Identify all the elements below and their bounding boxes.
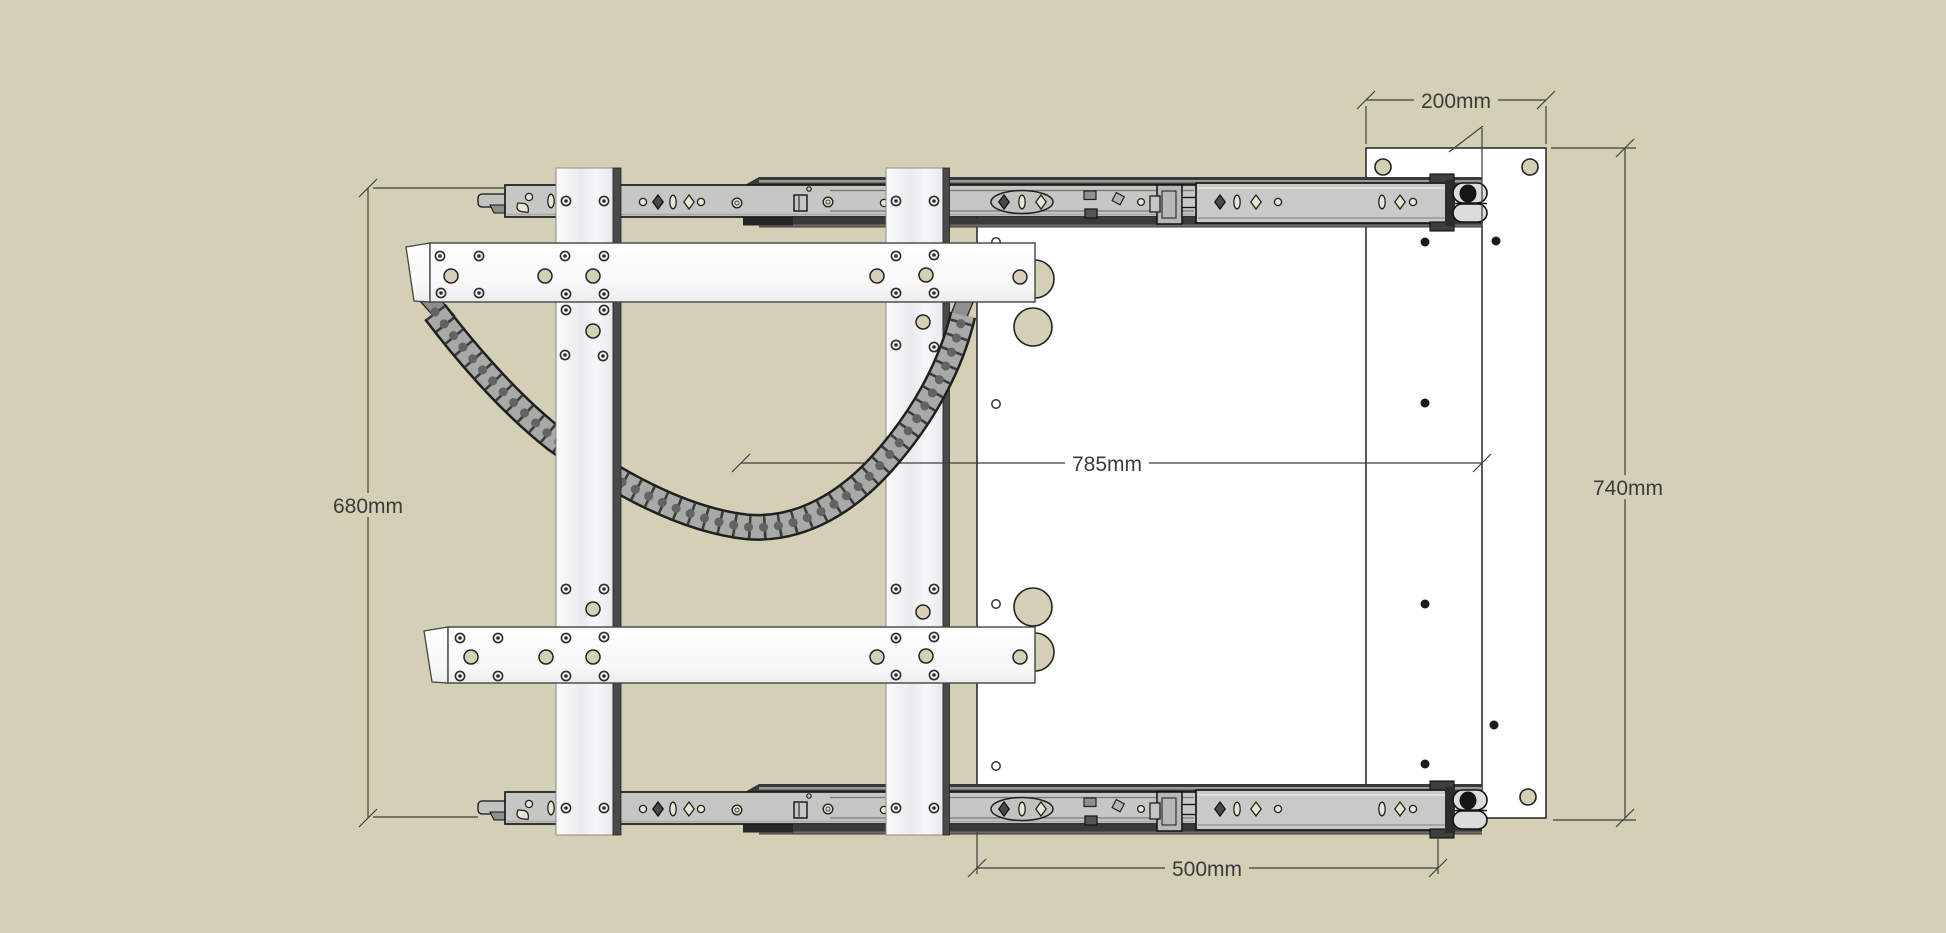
dim-label-785mm: 785mm (1072, 453, 1142, 476)
horizontal-bracket-top (406, 243, 1035, 302)
dim-label-740mm: 740mm (1593, 477, 1663, 500)
dim-label-200mm: 200mm (1421, 90, 1491, 113)
top-drawer-slide (478, 174, 1487, 231)
bottom-drawer-slide (478, 781, 1487, 838)
cad-drawing: 200mm 785mm 680mm 740mm 500mm (0, 0, 1946, 933)
horizontal-bracket-bottom (424, 627, 1035, 683)
drawer-panel (977, 212, 1482, 798)
dim-label-500mm: 500mm (1172, 858, 1242, 881)
dim-label-680mm: 680mm (333, 495, 403, 518)
sketchup-canvas: 200mm 785mm 680mm 740mm 500mm (0, 0, 1946, 933)
